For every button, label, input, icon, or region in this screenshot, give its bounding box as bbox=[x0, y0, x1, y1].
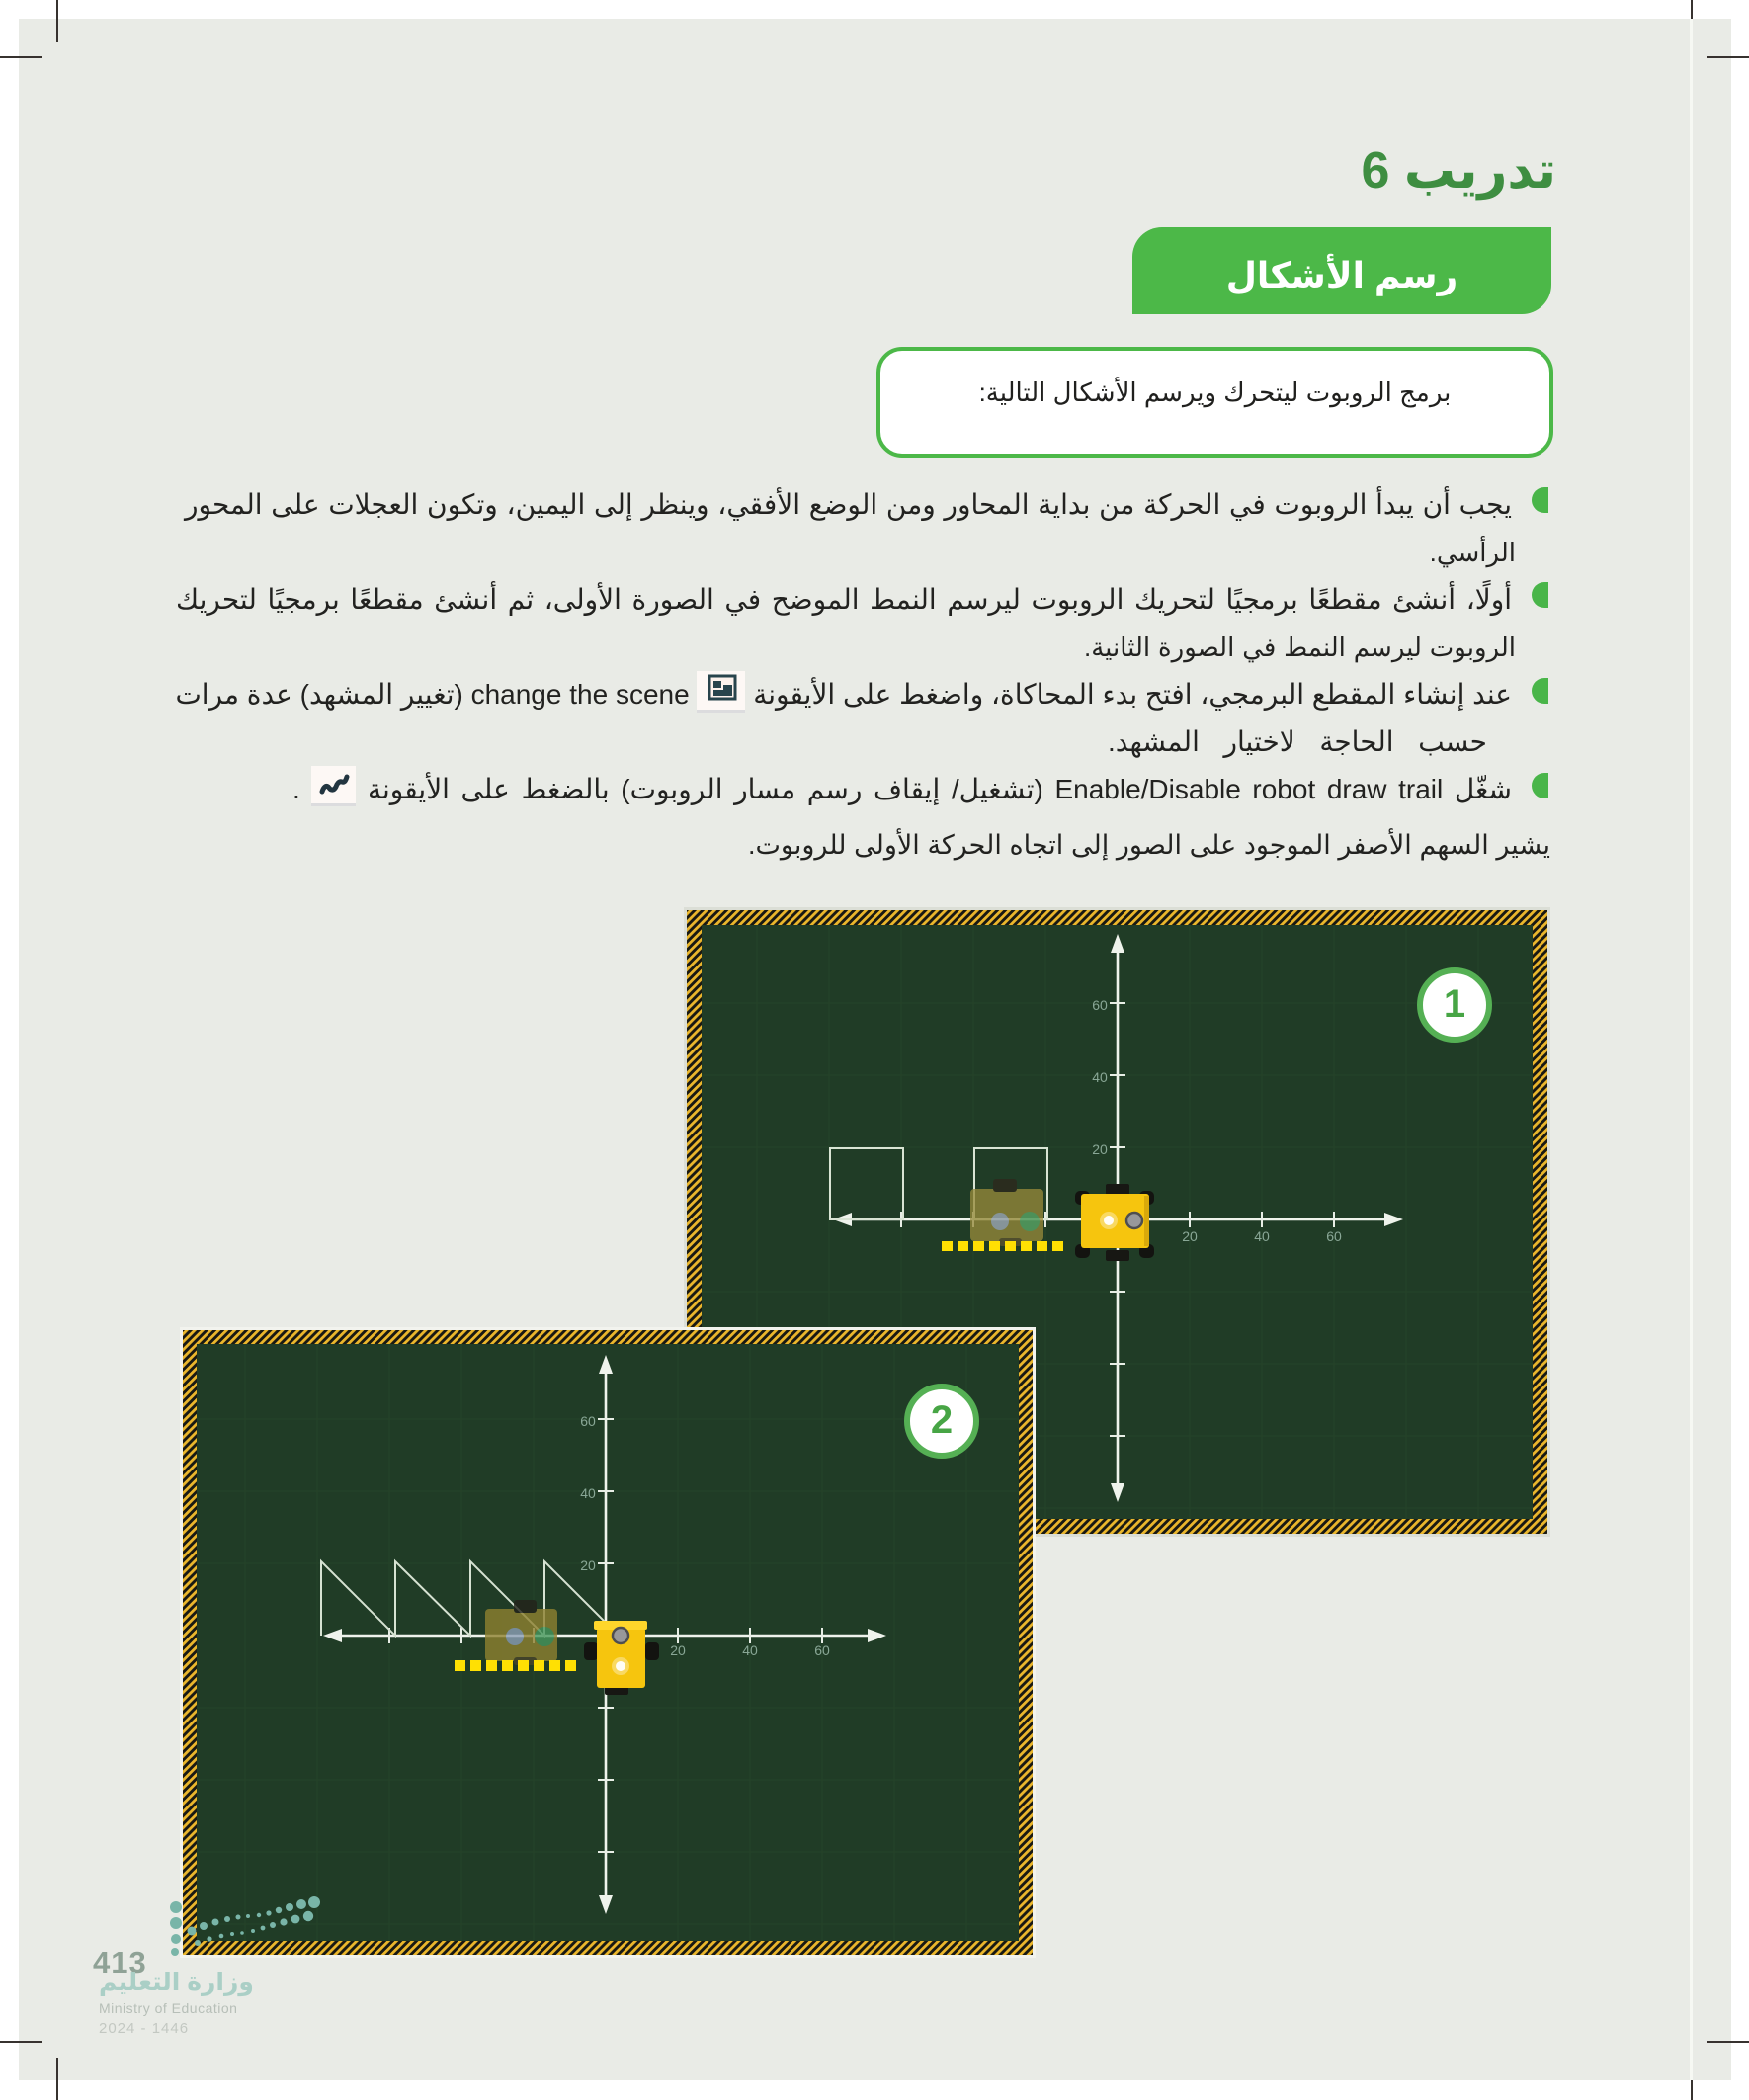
svg-text:20: 20 bbox=[1092, 1141, 1108, 1157]
svg-text:20: 20 bbox=[580, 1557, 596, 1573]
svg-text:40: 40 bbox=[742, 1642, 758, 1658]
svg-text:20: 20 bbox=[670, 1642, 686, 1658]
svg-text:60: 60 bbox=[1092, 997, 1108, 1013]
svg-text:40: 40 bbox=[1092, 1069, 1108, 1085]
svg-text:60: 60 bbox=[1326, 1228, 1342, 1244]
svg-text:60: 60 bbox=[814, 1642, 830, 1658]
svg-text:40: 40 bbox=[580, 1485, 596, 1501]
svg-text:60: 60 bbox=[580, 1413, 596, 1429]
svg-text:40: 40 bbox=[1254, 1228, 1270, 1244]
svg-text:20: 20 bbox=[1182, 1228, 1198, 1244]
